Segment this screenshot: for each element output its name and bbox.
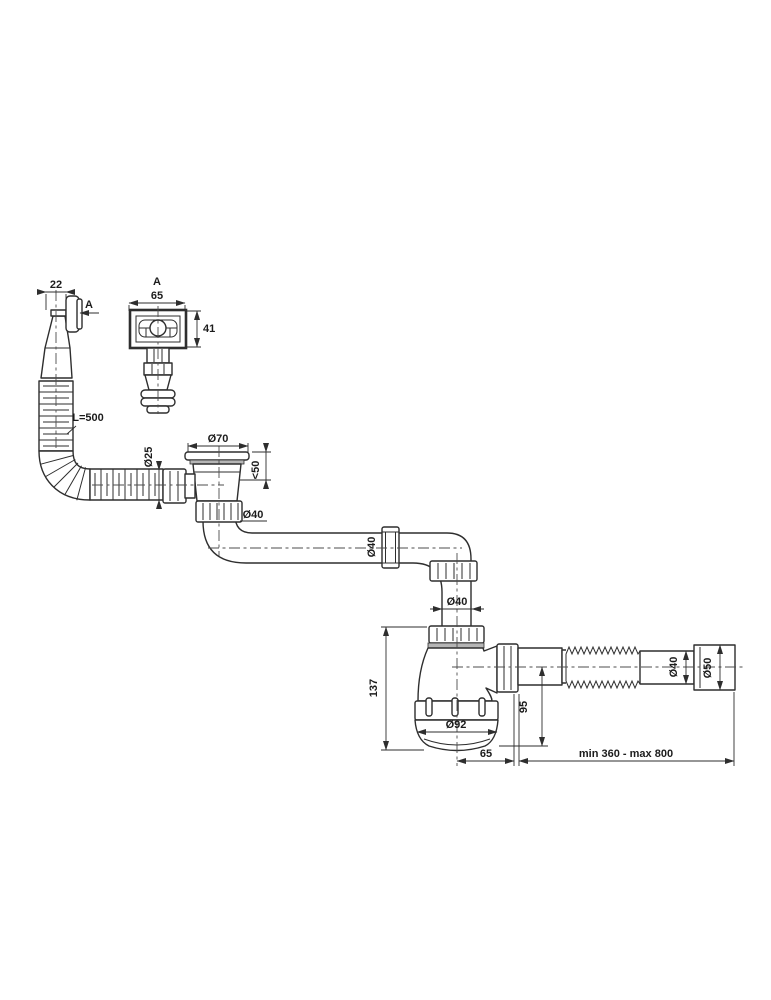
collar-tab xyxy=(426,698,432,716)
dim-label: 22 xyxy=(50,279,62,291)
view-label: A xyxy=(85,299,93,311)
outlet-nut xyxy=(497,644,518,692)
outlet-pipe xyxy=(518,648,562,685)
dim-strainer-outlet: Ø40 xyxy=(240,509,267,521)
dim-mount-depth: <50 xyxy=(240,443,271,489)
overflow-clip xyxy=(51,310,66,316)
dim-flange-dia: Ø70 xyxy=(188,433,248,452)
dim-label: Ø50 xyxy=(702,658,714,679)
dim-label: Ø25 xyxy=(143,447,155,468)
collar-tab xyxy=(479,698,485,716)
dim-flex-range: min 360 - max 800 xyxy=(519,692,734,766)
dim-label: <50 xyxy=(250,461,262,480)
dim-label: Ø40 xyxy=(668,657,680,678)
dim-label: Ø92 xyxy=(446,719,467,731)
dim-label: Ø40 xyxy=(243,509,264,521)
pipe-union-nut xyxy=(382,527,399,568)
sink-strainer xyxy=(185,452,249,522)
strainer-flange xyxy=(185,452,249,460)
dim-label: L=500 xyxy=(72,412,104,424)
dim-label: 65 xyxy=(480,748,492,760)
dim-label: 95 xyxy=(518,701,530,713)
view-marker-a: A xyxy=(80,299,99,313)
strainer-body xyxy=(193,464,241,501)
elbow-nut xyxy=(430,561,477,581)
dim-label: Ø70 xyxy=(208,433,229,445)
dim-label: 137 xyxy=(368,679,380,697)
dim-face-width: 65 xyxy=(129,290,185,311)
section-title: A xyxy=(153,276,161,288)
overflow-side-view xyxy=(41,296,82,378)
dim-label: 65 xyxy=(151,290,163,302)
dim-label: 41 xyxy=(203,323,215,335)
dim-pipe-nut: Ø40 xyxy=(366,537,378,558)
strainer-side-inlet xyxy=(185,474,195,498)
trap-outlet xyxy=(497,644,569,692)
trap-body xyxy=(418,646,497,701)
hose-nut xyxy=(163,469,186,503)
drawing-page: 22 A A 65 41 L=500 Ø25 Ø70 xyxy=(0,0,771,1000)
dim-face-height: 41 xyxy=(187,311,215,347)
dim-label: Ø40 xyxy=(447,596,468,608)
dim-label: min 360 - max 800 xyxy=(579,748,673,760)
dim-trap-inlet: Ø40 xyxy=(430,596,484,609)
technical-drawing: 22 A A 65 41 L=500 Ø25 Ø70 xyxy=(0,0,771,1000)
